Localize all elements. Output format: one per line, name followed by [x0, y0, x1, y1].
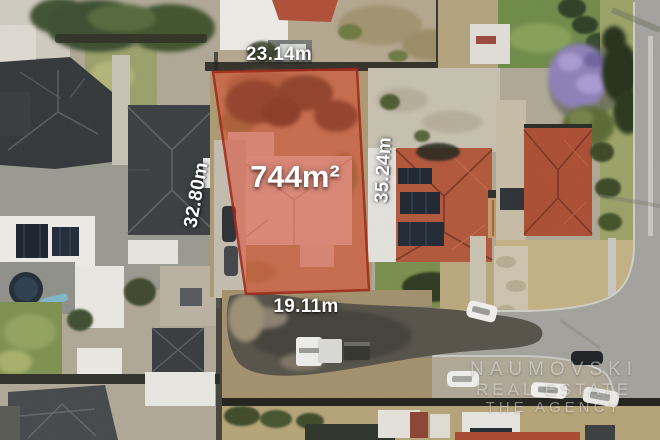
agency-watermark: NAUMOVSKI REAL ESTATE THE AGENCY — [470, 360, 638, 417]
watermark-line-2: REAL ESTATE — [470, 380, 638, 399]
dimension-label-bottom: 19.11m — [273, 296, 338, 318]
listing-aerial-view: 23.14m 32.80m 35.24m 19.11m 744m² NAUMOV… — [0, 0, 660, 440]
watermark-line-3: THE AGENCY — [470, 399, 638, 417]
watermark-line-1: NAUMOVSKI — [470, 360, 638, 380]
dimension-label-right: 35.24m — [371, 136, 396, 203]
dimension-label-top: 23.14m — [246, 44, 312, 66]
lot-area-label: 744m² — [250, 159, 340, 195]
